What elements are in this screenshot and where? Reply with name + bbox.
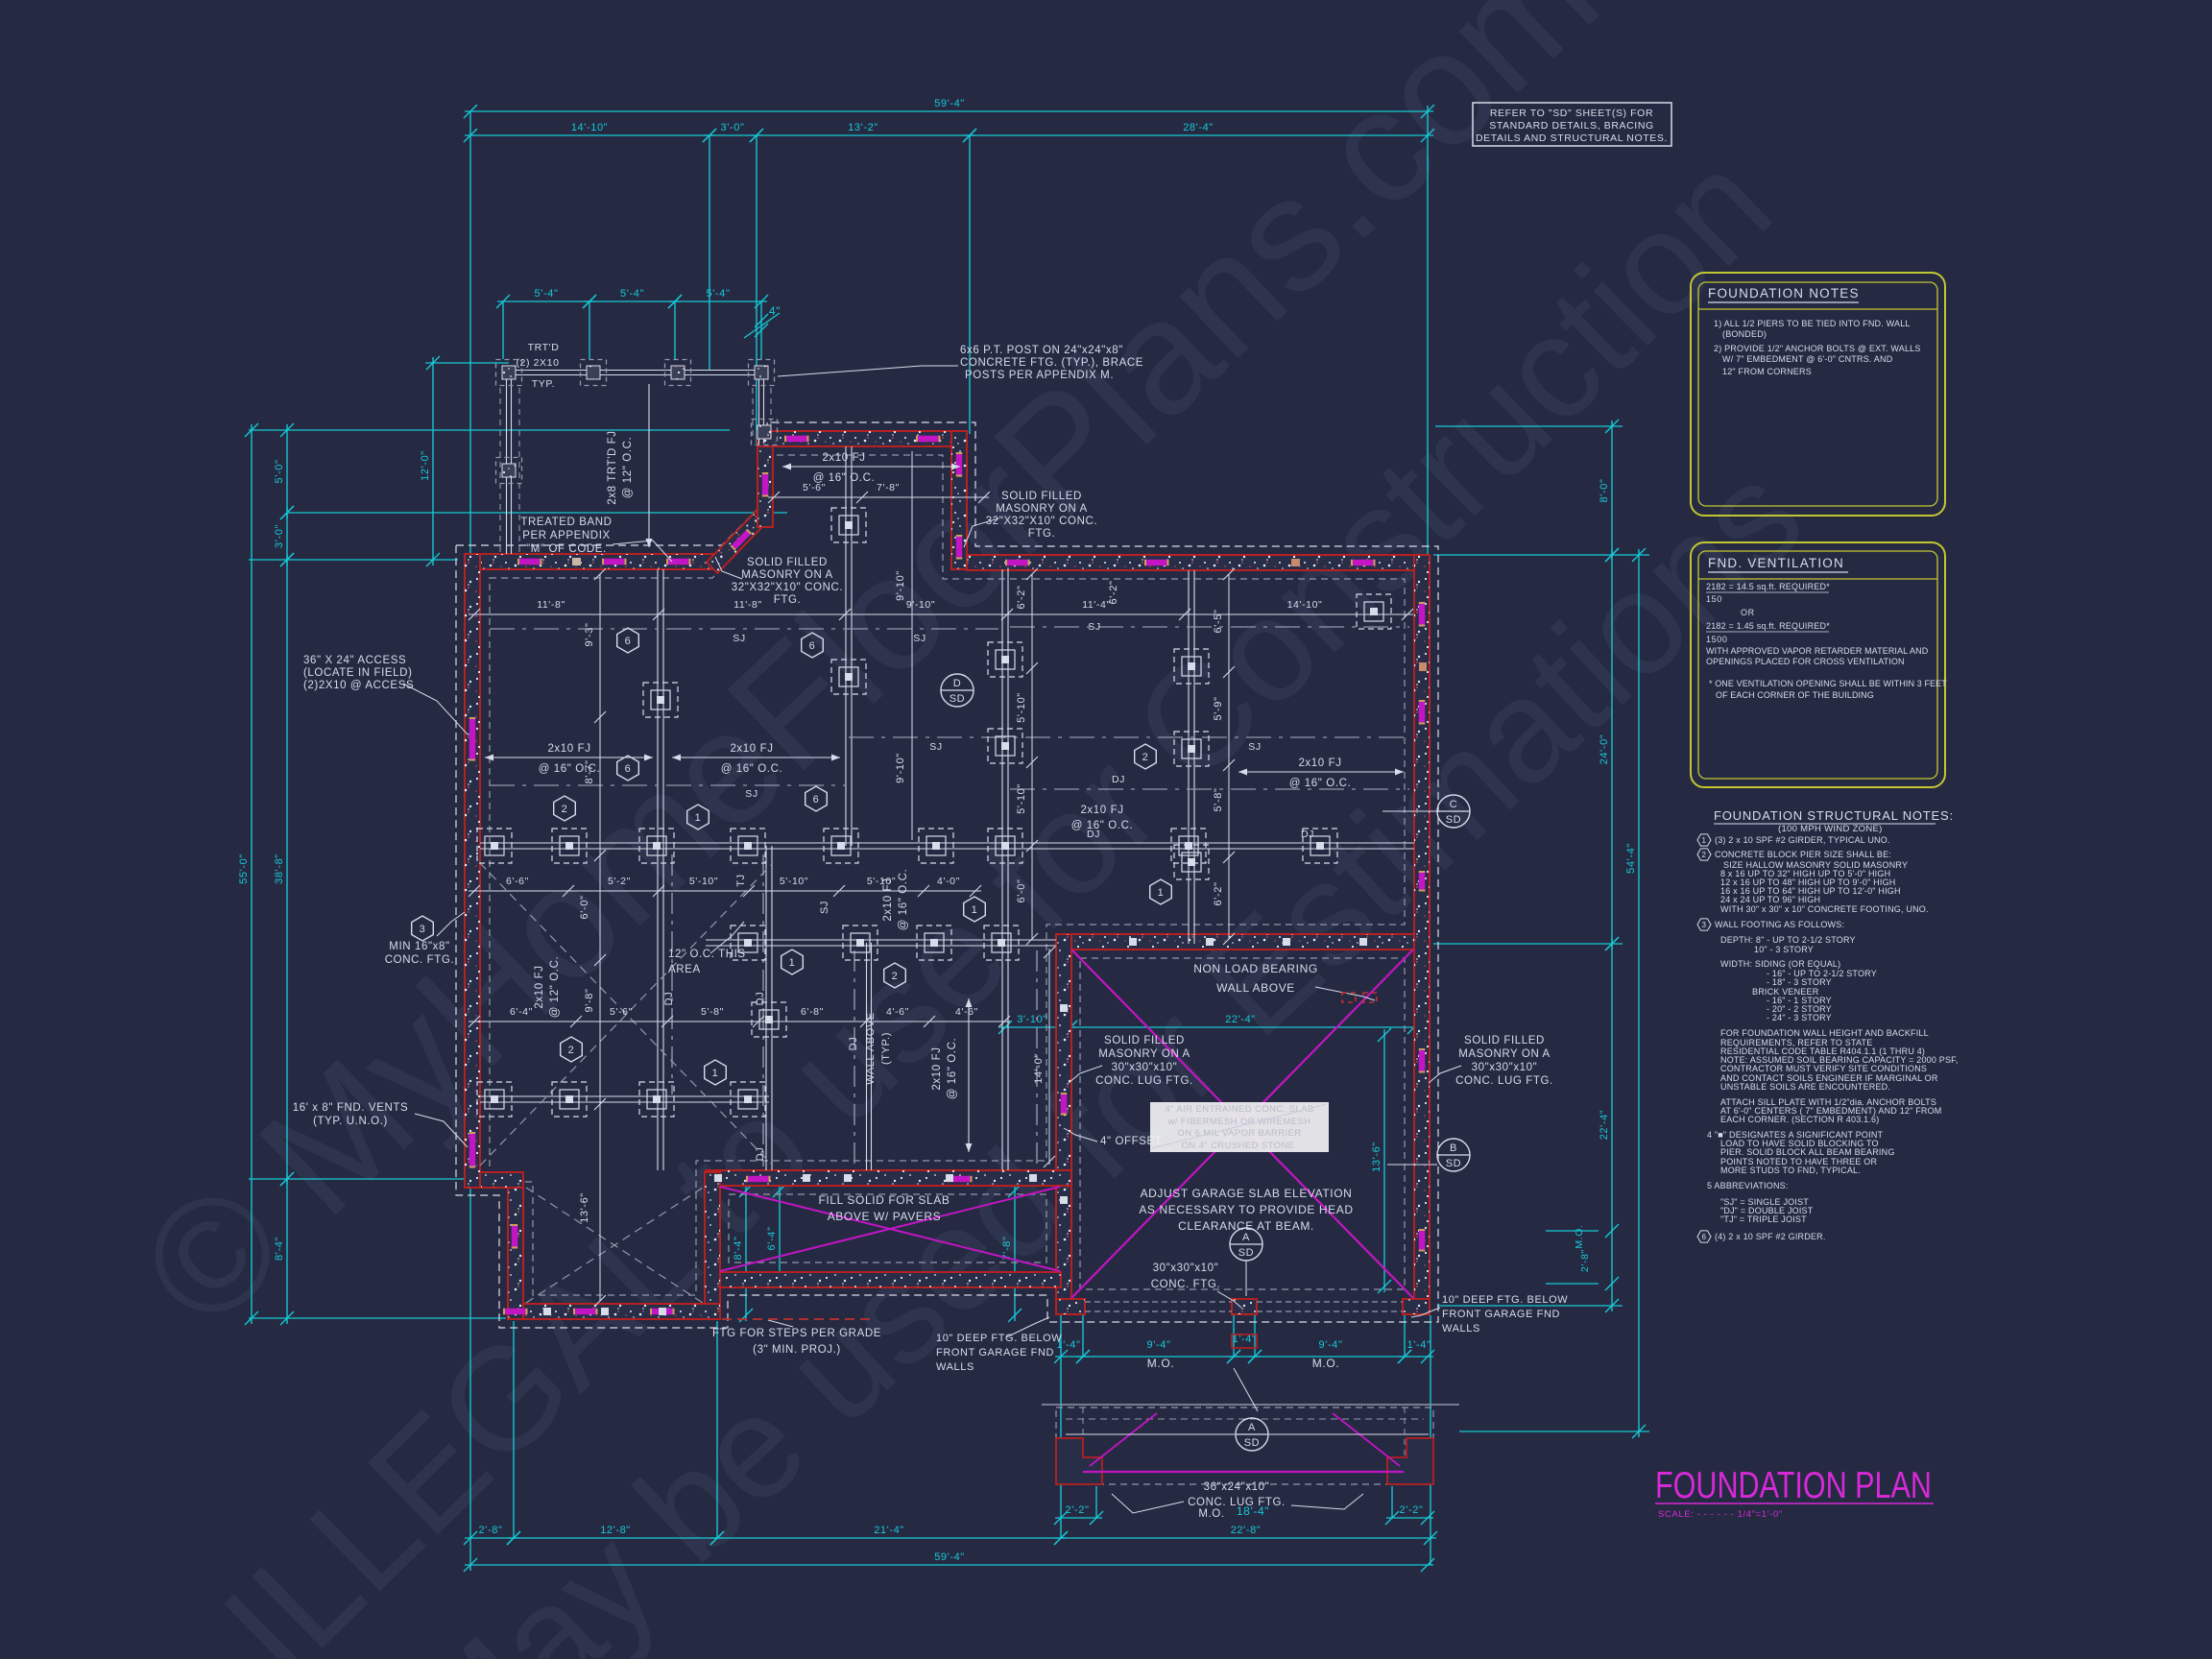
svg-text:TYP.: TYP. xyxy=(532,378,555,390)
svg-text:11'-8": 11'-8" xyxy=(537,599,565,611)
svg-text:13'-6": 13'-6" xyxy=(579,1192,590,1223)
svg-text:FTG.: FTG. xyxy=(774,594,802,606)
svg-text:DJ: DJ xyxy=(848,1037,859,1051)
svg-text:PER APPENDIX: PER APPENDIX xyxy=(522,530,611,541)
svg-text:SJ: SJ xyxy=(745,788,757,800)
svg-text:6'-6": 6'-6" xyxy=(506,876,529,887)
svg-text:(3) 2 x 10 SPF #2 GIRDER, TYPI: (3) 2 x 10 SPF #2 GIRDER, TYPICAL UNO. xyxy=(1715,835,1890,845)
svg-text:6: 6 xyxy=(625,636,632,647)
svg-text:6'-2": 6'-2" xyxy=(1016,586,1027,610)
svg-text:TJ: TJ xyxy=(735,874,747,886)
svg-text:MASONRY ON A: MASONRY ON A xyxy=(996,503,1088,515)
svg-text:ADJUST GARAGE SLAB ELEVATION: ADJUST GARAGE SLAB ELEVATION xyxy=(1141,1187,1353,1200)
svg-text:DEPTH: 8" - UP TO 2-1/2 STORY: DEPTH: 8" - UP TO 2-1/2 STORY xyxy=(1720,935,1856,945)
svg-text:2x10 FJ: 2x10 FJ xyxy=(822,452,865,464)
svg-text:FRONT GARAGE FND: FRONT GARAGE FND xyxy=(1442,1309,1560,1320)
svg-text:(TYP.): (TYP.) xyxy=(880,1032,892,1065)
svg-text:5'-2": 5'-2" xyxy=(608,876,631,887)
svg-text:6'-4": 6'-4" xyxy=(766,1227,778,1251)
svg-text:24 x 24 UP TO 96" HIGH: 24 x 24 UP TO 96" HIGH xyxy=(1720,895,1820,904)
svg-text:21'-4": 21'-4" xyxy=(874,1525,904,1536)
svg-text:SJ: SJ xyxy=(913,633,926,644)
svg-text:1500: 1500 xyxy=(1706,635,1727,644)
svg-text:2) PROVIDE 1/2" ANCHOR BOLTS @: 2) PROVIDE 1/2" ANCHOR BOLTS @ EXT. WALL… xyxy=(1714,344,1921,353)
svg-text:WALLS: WALLS xyxy=(1442,1323,1480,1334)
svg-text:32"X32"X10" CONC.: 32"X32"X10" CONC. xyxy=(732,582,843,593)
svg-text:AREA: AREA xyxy=(668,964,701,975)
svg-text:(BONDED): (BONDED) xyxy=(1722,329,1767,339)
svg-text:6'-0": 6'-0" xyxy=(1016,879,1027,903)
svg-text:5'-6": 5'-6" xyxy=(610,1006,633,1018)
svg-text:MASONRY ON A: MASONRY ON A xyxy=(1098,1048,1190,1060)
svg-text:6x6 P.T. POST ON 24"x24"x8": 6x6 P.T. POST ON 24"x24"x8" xyxy=(960,345,1123,356)
svg-text:10" DEEP FTG. BELOW: 10" DEEP FTG. BELOW xyxy=(936,1333,1062,1344)
svg-text:M.O.: M.O. xyxy=(1312,1357,1339,1370)
svg-text:MASONRY ON A: MASONRY ON A xyxy=(741,569,833,581)
svg-text:59'-4": 59'-4" xyxy=(934,98,965,109)
svg-text:POSTS PER APPENDIX M.: POSTS PER APPENDIX M. xyxy=(965,370,1114,381)
svg-text:(100 MPH WIND ZONE): (100 MPH WIND ZONE) xyxy=(1778,824,1883,834)
svg-text:9'-10": 9'-10" xyxy=(906,599,935,611)
svg-text:A: A xyxy=(1242,1232,1250,1243)
svg-text:6'-2": 6'-2" xyxy=(1213,882,1224,906)
svg-text:2182 = 1.45 sq.ft. REQUIRE: 2182 = 1.45 sq.ft. REQUIRED* xyxy=(1706,621,1830,631)
svg-text:3'-0": 3'-0" xyxy=(274,524,285,548)
svg-text:2x8 TRT'D FJ: 2x8 TRT'D FJ xyxy=(607,430,618,504)
svg-text:SOLID FILLED: SOLID FILLED xyxy=(747,557,828,568)
svg-text:MORE STUDS TO FND, TYPICAL.: MORE STUDS TO FND, TYPICAL. xyxy=(1720,1166,1861,1175)
svg-text:6'-8": 6'-8" xyxy=(801,1006,824,1018)
svg-text:7'-8": 7'-8" xyxy=(877,482,900,493)
svg-text:@ 16" O.C.: @ 16" O.C. xyxy=(947,1038,958,1100)
svg-text:C: C xyxy=(1450,799,1458,810)
svg-text:3'-0": 3'-0" xyxy=(721,122,745,133)
svg-text:SD: SD xyxy=(1446,814,1461,826)
svg-text:w/ FIBERMESH OR WIREMESH: w/ FIBERMESH OR WIREMESH xyxy=(1167,1117,1311,1127)
svg-text:AS NECESSARY TO PROVIDE HEAD: AS NECESSARY TO PROVIDE HEAD xyxy=(1139,1203,1353,1216)
svg-text:2x10 FJ: 2x10 FJ xyxy=(882,878,894,921)
svg-text:2'-8": 2'-8" xyxy=(479,1525,503,1536)
svg-text:UNSTABLE SOILS ARE ENCOUNTERED: UNSTABLE SOILS ARE ENCOUNTERED. xyxy=(1720,1082,1890,1092)
svg-text:28'-4": 28'-4" xyxy=(1183,122,1214,133)
svg-text:5'-9": 5'-9" xyxy=(1213,697,1224,721)
svg-text:2x10 FJ: 2x10 FJ xyxy=(931,1046,943,1090)
svg-text:6'-0": 6'-0" xyxy=(579,896,590,920)
svg-text:FOUNDATION NOTES: FOUNDATION NOTES xyxy=(1708,286,1860,301)
svg-text:B: B xyxy=(1450,1142,1457,1154)
svg-text:2x10 FJ: 2x10 FJ xyxy=(730,743,773,755)
svg-text:5'-10": 5'-10" xyxy=(1016,783,1027,814)
svg-text:30"x30"x10": 30"x30"x10" xyxy=(1472,1062,1538,1073)
svg-text:M.O.: M.O. xyxy=(1574,1224,1585,1248)
svg-text:10" - 3 STORY: 10" - 3 STORY xyxy=(1754,945,1814,954)
svg-text:(LOCATE IN FIELD): (LOCATE IN FIELD) xyxy=(303,667,413,679)
svg-text:@ 16" O.C.: @ 16" O.C. xyxy=(1071,820,1134,831)
svg-text:8'-4": 8'-4" xyxy=(733,1237,744,1261)
svg-text:SJ: SJ xyxy=(819,901,830,914)
svg-text:SJ: SJ xyxy=(929,741,942,753)
svg-text:2x10 FJ: 2x10 FJ xyxy=(1298,757,1341,769)
svg-text:ABOVE W/ PAVERS: ABOVE W/ PAVERS xyxy=(828,1210,942,1223)
svg-text:FILL SOLID FOR SLAB: FILL SOLID FOR SLAB xyxy=(819,1193,950,1207)
svg-text:FOUNDATION PLAN: FOUNDATION PLAN xyxy=(1655,1465,1932,1506)
svg-text:A: A xyxy=(1248,1422,1256,1433)
svg-text:(3" MIN. PROJ.): (3" MIN. PROJ.) xyxy=(753,1344,841,1356)
svg-text:* ONE VENTILATION OPENING SHAL: * ONE VENTILATION OPENING SHALL BE WITHI… xyxy=(1709,679,1947,688)
svg-text:5'-0": 5'-0" xyxy=(274,460,285,484)
svg-text:FRONT GARAGE FND: FRONT GARAGE FND xyxy=(936,1347,1054,1358)
svg-text:2'-8": 2'-8" xyxy=(1579,1249,1591,1272)
svg-text:PIER. SOLID BLOCK ALL BEAM BEA: PIER. SOLID BLOCK ALL BEAM BEARING xyxy=(1720,1147,1895,1157)
svg-text:32"X32"X10" CONC.: 32"X32"X10" CONC. xyxy=(986,516,1097,527)
svg-text:WIDTH: SIDING (OR EQUAL): WIDTH: SIDING (OR EQUAL) xyxy=(1720,959,1840,969)
svg-text:1: 1 xyxy=(972,904,978,916)
svg-text:@ 16" O.C.: @ 16" O.C. xyxy=(721,763,783,775)
svg-text:2x10 FJ: 2x10 FJ xyxy=(547,743,590,755)
svg-text:DJ: DJ xyxy=(1112,774,1125,785)
svg-text:FTG FOR STEPS PER GRADE: FTG FOR STEPS PER GRADE xyxy=(712,1328,881,1339)
svg-text:5'-8": 5'-8" xyxy=(701,1006,724,1018)
svg-text:FND. VENTILATION: FND. VENTILATION xyxy=(1708,556,1844,570)
svg-text:- 18" - 3 STORY: - 18" - 3 STORY xyxy=(1767,977,1832,987)
svg-text:TRT'D: TRT'D xyxy=(528,342,560,353)
svg-text:6'-2": 6'-2" xyxy=(1108,581,1119,605)
svg-text:CLEARANCE AT BEAM.: CLEARANCE AT BEAM. xyxy=(1178,1219,1314,1233)
svg-text:9'-8": 9'-8" xyxy=(584,989,595,1013)
svg-text:SJ: SJ xyxy=(1088,621,1100,633)
svg-text:9'-4": 9'-4" xyxy=(1147,1339,1171,1351)
svg-text:@ 16" O.C.: @ 16" O.C. xyxy=(898,869,909,931)
svg-text:5'-4": 5'-4" xyxy=(707,288,731,300)
svg-text:SJ: SJ xyxy=(733,633,745,644)
svg-text:MIN 16"x8": MIN 16"x8" xyxy=(389,941,449,952)
svg-text:OF EACH CORNER OF THE BUILDING: OF EACH CORNER OF THE BUILDING xyxy=(1716,690,1874,700)
svg-text:12" FROM CORNERS: 12" FROM CORNERS xyxy=(1722,367,1812,376)
svg-text:3'-10": 3'-10" xyxy=(1017,1014,1047,1025)
svg-text:WITH APPROVED VAPOR RETARDER M: WITH APPROVED VAPOR RETARDER MATERIAL AN… xyxy=(1706,646,1929,656)
svg-text:@ 12" O.C.: @ 12" O.C. xyxy=(622,437,634,499)
svg-text:8'-4": 8'-4" xyxy=(274,1237,285,1261)
svg-text:5'-8": 5'-8" xyxy=(1213,788,1224,812)
svg-text:4'-0": 4'-0" xyxy=(937,876,960,887)
svg-text:SJ: SJ xyxy=(1248,741,1261,753)
svg-text:10" DEEP FTG. BELOW: 10" DEEP FTG. BELOW xyxy=(1442,1294,1568,1306)
svg-text:5 ABBREVIATIONS:: 5 ABBREVIATIONS: xyxy=(1707,1181,1789,1190)
svg-text:24'-0": 24'-0" xyxy=(1599,734,1610,765)
svg-text:8'-0": 8'-0" xyxy=(1599,479,1610,503)
svg-text:38'-8": 38'-8" xyxy=(274,854,285,884)
svg-text:M.O.: M.O. xyxy=(1147,1357,1174,1370)
svg-text:150: 150 xyxy=(1706,594,1722,604)
svg-text:55'-0": 55'-0" xyxy=(238,854,250,884)
svg-text:1'-4": 1'-4" xyxy=(1233,1334,1257,1345)
svg-text:9'-10": 9'-10" xyxy=(895,753,906,783)
svg-text:CONC. FTG.: CONC. FTG. xyxy=(385,954,454,966)
svg-text:(4) 2 x 10 SPF #2 GIRDER.: (4) 2 x 10 SPF #2 GIRDER. xyxy=(1715,1232,1826,1241)
svg-text:2: 2 xyxy=(892,971,899,982)
svg-text:FOR FOUNDATION WALL HEIGHT AND: FOR FOUNDATION WALL HEIGHT AND BACKFILL xyxy=(1720,1028,1929,1038)
svg-text:5'-4": 5'-4" xyxy=(535,288,559,300)
svg-text:D: D xyxy=(953,678,962,689)
svg-text:DJ: DJ xyxy=(1301,829,1314,840)
svg-text:36"x24"x10": 36"x24"x10" xyxy=(1204,1481,1270,1493)
svg-text:13'-2": 13'-2" xyxy=(848,122,878,133)
svg-text:SD: SD xyxy=(950,693,965,705)
svg-text:TREATED BAND: TREATED BAND xyxy=(520,517,612,528)
svg-text:(2)2X10 @ ACCESS: (2)2X10 @ ACCESS xyxy=(303,680,414,691)
svg-text:12'-8": 12'-8" xyxy=(600,1525,631,1536)
svg-text:CONTRACTOR MUST VERIFY SITE CO: CONTRACTOR MUST VERIFY SITE CONDITIONS xyxy=(1720,1064,1927,1073)
svg-text:12" O.C. THIS: 12" O.C. THIS xyxy=(668,949,746,960)
svg-text:"TJ" = TRIPLE JOIST: "TJ" = TRIPLE JOIST xyxy=(1720,1214,1807,1224)
svg-text:11'-4": 11'-4" xyxy=(1082,599,1111,611)
svg-text:MASONRY ON A: MASONRY ON A xyxy=(1458,1048,1551,1060)
svg-text:CONCRETE FTG. (TYP.), BRACE: CONCRETE FTG. (TYP.), BRACE xyxy=(960,357,1143,369)
svg-text:1: 1 xyxy=(1158,887,1165,899)
svg-text:REFER TO "SD" SHEET(S) FOR: REFER TO "SD" SHEET(S) FOR xyxy=(1490,108,1653,119)
svg-text:CONC. FTG.: CONC. FTG. xyxy=(1151,1279,1220,1290)
svg-text:1: 1 xyxy=(789,957,796,969)
svg-text:14'-10": 14'-10" xyxy=(571,122,608,133)
svg-text:M.O.: M.O. xyxy=(1198,1508,1224,1520)
svg-text:W/ 7" EMBEDMENT @ 6'-0" CNTRS.: W/ 7" EMBEDMENT @ 6'-0" CNTRS. AND xyxy=(1722,354,1893,364)
svg-text:2x10 FJ: 2x10 FJ xyxy=(534,965,545,1008)
svg-text:OR: OR xyxy=(1741,608,1755,617)
svg-text:3: 3 xyxy=(420,924,426,935)
svg-text:(TYP. U.N.O.): (TYP. U.N.O.) xyxy=(313,1116,388,1127)
svg-text:STANDARD DETAILS, BRACING: STANDARD DETAILS, BRACING xyxy=(1489,120,1654,132)
svg-text:12'-0": 12'-0" xyxy=(420,450,431,481)
svg-text:CONC. LUG FTG.: CONC. LUG FTG. xyxy=(1095,1075,1193,1087)
svg-text:4'-6": 4'-6" xyxy=(886,1006,909,1018)
svg-text:DJ: DJ xyxy=(755,1147,766,1162)
svg-text:SD: SD xyxy=(1244,1437,1260,1449)
svg-text:14'-10": 14'-10" xyxy=(1287,599,1323,611)
svg-text:SOLID FILLED: SOLID FILLED xyxy=(1464,1035,1545,1046)
svg-text:2'-2": 2'-2" xyxy=(1066,1504,1090,1516)
svg-text:6'-5": 6'-5" xyxy=(1213,610,1224,634)
svg-text:54'-4": 54'-4" xyxy=(1625,843,1637,874)
svg-text:WITH 30" x 30" x 10" CONCRETE: WITH 30" x 30" x 10" CONCRETE FOOTING, U… xyxy=(1720,904,1929,914)
svg-text:13'-6": 13'-6" xyxy=(1371,1142,1382,1172)
svg-text:2: 2 xyxy=(1142,752,1149,763)
svg-text:6'-4": 6'-4" xyxy=(510,1006,533,1018)
svg-text:SOLID FILLED: SOLID FILLED xyxy=(1104,1035,1185,1046)
svg-text:22'-4": 22'-4" xyxy=(1599,1110,1610,1141)
svg-text:6: 6 xyxy=(813,794,820,805)
svg-text:1: 1 xyxy=(712,1068,719,1079)
svg-text:@ 16" O.C.: @ 16" O.C. xyxy=(813,472,876,484)
svg-text:CONC. LUG FTG.: CONC. LUG FTG. xyxy=(1188,1497,1286,1508)
svg-text:9'-3": 9'-3" xyxy=(584,623,595,647)
svg-text:4'-6": 4'-6" xyxy=(955,1006,978,1018)
svg-text:WALL FOOTING AS FOLLOWS:: WALL FOOTING AS FOLLOWS: xyxy=(1715,920,1844,929)
svg-text:14'-0": 14'-0" xyxy=(1033,1053,1045,1084)
svg-text:5'-10": 5'-10" xyxy=(1016,692,1027,723)
svg-text:30"x30"x10": 30"x30"x10" xyxy=(1153,1262,1219,1274)
svg-text:(2) 2X10: (2) 2X10 xyxy=(516,357,559,369)
svg-text:2'-2": 2'-2" xyxy=(1400,1504,1424,1516)
svg-text:5'-10": 5'-10" xyxy=(780,876,808,887)
svg-text:30"x30"x10": 30"x30"x10" xyxy=(1112,1062,1178,1073)
svg-text:NON LOAD BEARING: NON LOAD BEARING xyxy=(1193,962,1318,975)
svg-text:- 24" - 3 STORY: - 24" - 3 STORY xyxy=(1767,1013,1832,1022)
svg-text:1'-4": 1'-4" xyxy=(1407,1339,1431,1351)
svg-text:DJ: DJ xyxy=(663,992,675,1006)
svg-text:2: 2 xyxy=(568,1045,575,1056)
svg-text:6: 6 xyxy=(809,640,816,652)
svg-text:WALLS: WALLS xyxy=(936,1361,974,1373)
svg-text:WALL ABOVE: WALL ABOVE xyxy=(1216,981,1295,995)
svg-text:WALL ABOVE: WALL ABOVE xyxy=(865,1012,877,1085)
svg-text:DETAILS AND STRUCTURAL NOTES.: DETAILS AND STRUCTURAL NOTES. xyxy=(1476,132,1668,144)
svg-text:1) ALL 1/2 PIERS TO BE TIED IN: 1) ALL 1/2 PIERS TO BE TIED INTO FND. WA… xyxy=(1714,319,1911,328)
svg-text:SD: SD xyxy=(1238,1247,1254,1259)
svg-text:DJ: DJ xyxy=(755,992,766,1006)
svg-text:16' x 8" FND. VENTS: 16' x 8" FND. VENTS xyxy=(293,1102,409,1114)
svg-text:DJ: DJ xyxy=(1087,829,1100,840)
svg-text:2: 2 xyxy=(1701,851,1706,859)
svg-text:36" X 24" ACCESS: 36" X 24" ACCESS xyxy=(303,655,406,666)
svg-text:1: 1 xyxy=(1701,836,1706,845)
svg-text:CONCRETE BLOCK PIER SIZE SHALL: CONCRETE BLOCK PIER SIZE SHALL BE: xyxy=(1715,850,1891,859)
svg-text:@ 16" O.C.: @ 16" O.C. xyxy=(1289,778,1352,789)
svg-text:"M" OF CODE.: "M" OF CODE. xyxy=(526,543,607,555)
svg-text:SCALE: - - - - - - 1/4"=1'-0: SCALE: - - - - - - 1/4"=1'-0" xyxy=(1658,1509,1783,1520)
svg-text:EACH CORNER. (SECTION R 403.1.: EACH CORNER. (SECTION R 403.1.6) xyxy=(1720,1115,1879,1124)
svg-text:11'-8": 11'-8" xyxy=(733,599,762,611)
svg-text:SOLID FILLED: SOLID FILLED xyxy=(1001,491,1082,502)
svg-text:FTG.: FTG. xyxy=(1028,528,1056,540)
svg-text:22'-8": 22'-8" xyxy=(1231,1525,1262,1536)
svg-text:SD: SD xyxy=(1446,1158,1461,1169)
svg-text:5'-10": 5'-10" xyxy=(689,876,718,887)
svg-text:6: 6 xyxy=(625,763,632,775)
svg-text:22'-4": 22'-4" xyxy=(1225,1014,1256,1025)
svg-text:@ 16" O.C.: @ 16" O.C. xyxy=(539,763,601,775)
svg-text:FOUNDATION STRUCTURAL NOTES:: FOUNDATION STRUCTURAL NOTES: xyxy=(1714,808,1954,823)
svg-text:@ 12" O.C.: @ 12" O.C. xyxy=(549,956,561,1019)
svg-text:ON 4" CRUSHED STONE.: ON 4" CRUSHED STONE. xyxy=(1182,1141,1298,1151)
svg-text:9'-4": 9'-4" xyxy=(1319,1339,1343,1351)
svg-text:3: 3 xyxy=(1701,921,1706,929)
svg-text:59'-4": 59'-4" xyxy=(934,1551,965,1563)
svg-text:2x10 FJ: 2x10 FJ xyxy=(1080,805,1123,816)
svg-text:6: 6 xyxy=(1701,1233,1706,1241)
svg-text:CONC. LUG FTG.: CONC. LUG FTG. xyxy=(1455,1075,1553,1087)
svg-text:2: 2 xyxy=(562,804,568,815)
svg-text:OPENINGS PLACED FOR CROSS VENT: OPENINGS PLACED FOR CROSS VENTILATION xyxy=(1706,657,1905,666)
svg-text:1: 1 xyxy=(695,812,702,824)
svg-text:2182 = 14.5 sq.ft. REQUIRE: 2182 = 14.5 sq.ft. REQUIRED* xyxy=(1706,582,1830,591)
svg-text:5'-4": 5'-4" xyxy=(620,288,644,300)
svg-text:9'-10": 9'-10" xyxy=(895,570,906,601)
